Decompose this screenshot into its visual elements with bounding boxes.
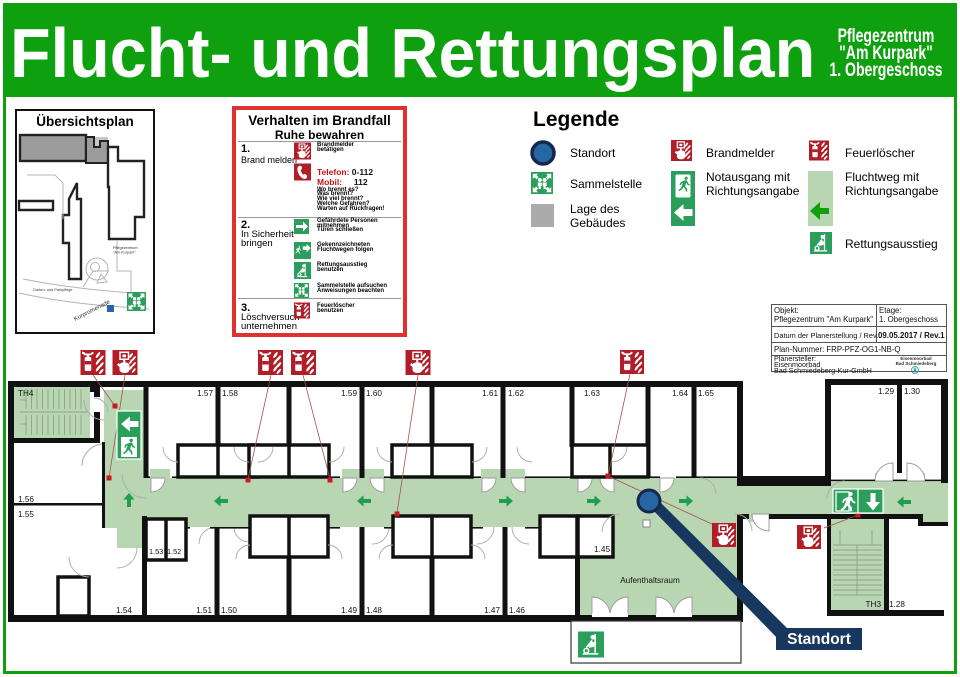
svg-text:1.47: 1.47 — [484, 606, 500, 615]
svg-text:1.50: 1.50 — [221, 606, 237, 615]
svg-text:1.59: 1.59 — [341, 389, 357, 398]
svg-text:1.54: 1.54 — [116, 606, 132, 615]
svg-text:1.51: 1.51 — [196, 606, 212, 615]
svg-text:1.49: 1.49 — [341, 606, 357, 615]
svg-text:1.48: 1.48 — [366, 606, 382, 615]
svg-text:1.64: 1.64 — [672, 389, 688, 398]
svg-text:1.57: 1.57 — [197, 389, 213, 398]
svg-text:Standort: Standort — [787, 631, 851, 648]
svg-text:1.29: 1.29 — [878, 387, 894, 396]
svg-text:1.46: 1.46 — [509, 606, 525, 615]
svg-text:1.56: 1.56 — [18, 495, 34, 504]
svg-text:1.52: 1.52 — [167, 547, 181, 556]
svg-text:1.60: 1.60 — [366, 389, 382, 398]
svg-text:1.53: 1.53 — [149, 547, 163, 556]
svg-text:1.61: 1.61 — [482, 389, 498, 398]
svg-text:TH4: TH4 — [18, 389, 34, 398]
svg-text:1.65: 1.65 — [698, 389, 714, 398]
svg-text:1.28: 1.28 — [889, 600, 905, 609]
svg-text:1.45: 1.45 — [594, 545, 610, 554]
svg-text:1.55: 1.55 — [18, 510, 34, 519]
svg-text:1.63: 1.63 — [584, 389, 600, 398]
svg-text:1.62: 1.62 — [508, 389, 524, 398]
svg-text:1.58: 1.58 — [222, 389, 238, 398]
svg-text:Aufenthaltsraum: Aufenthaltsraum — [620, 576, 680, 585]
svg-text:1.30: 1.30 — [904, 387, 920, 396]
svg-text:TH3: TH3 — [866, 600, 882, 609]
